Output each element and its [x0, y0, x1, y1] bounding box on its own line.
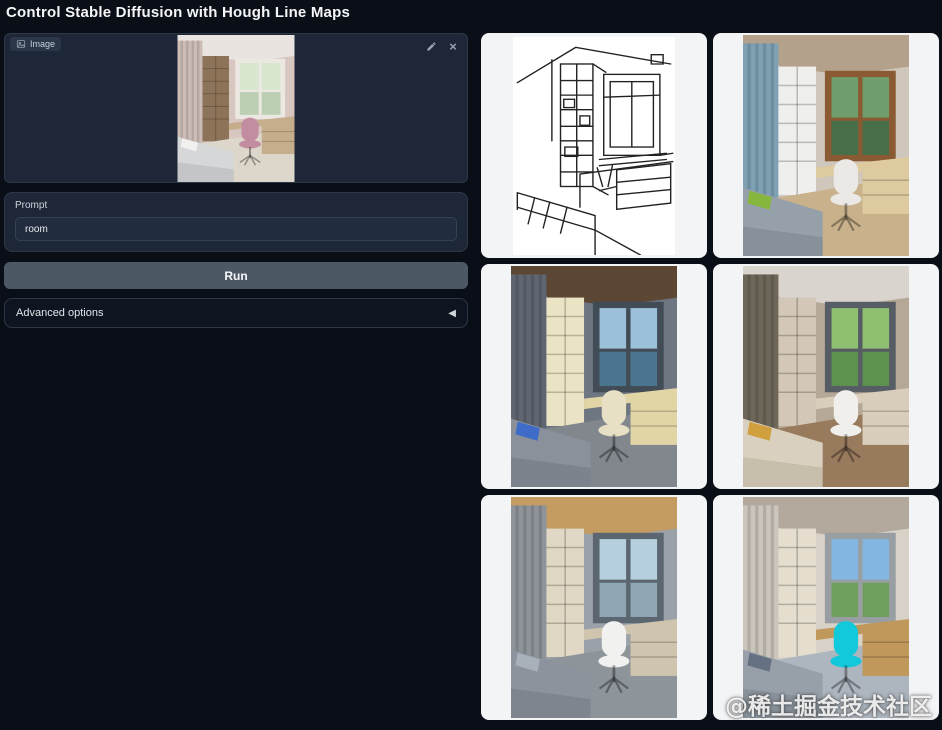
prompt-panel: Prompt [4, 192, 468, 252]
image-icon [16, 39, 26, 49]
uploaded-image-preview[interactable] [178, 35, 295, 182]
generated-room-image [511, 266, 677, 487]
uploaded-room-image [178, 35, 295, 182]
gallery-item-result-1[interactable] [713, 33, 939, 258]
prompt-label: Prompt [15, 200, 457, 211]
gallery-item-hough-map[interactable] [481, 33, 707, 258]
image-upload-area[interactable]: Image × [4, 33, 468, 183]
prompt-input[interactable] [15, 217, 457, 241]
gallery-item-result-5[interactable] [713, 495, 939, 720]
generated-room-image [511, 497, 677, 718]
image-toolbar: × [424, 39, 460, 53]
gallery-item-result-2[interactable] [481, 264, 707, 489]
generated-room-image [743, 497, 909, 718]
advanced-options-label: Advanced options [16, 307, 103, 319]
image-component-label: Image [30, 39, 55, 49]
output-gallery [481, 33, 939, 720]
gallery-item-result-3[interactable] [713, 264, 939, 489]
advanced-options-accordion[interactable]: Advanced options ◀ [4, 298, 468, 328]
input-column: Image × Prompt Run Advanced options ◀ [4, 33, 468, 328]
chevron-left-icon: ◀ [448, 308, 456, 319]
pencil-icon [426, 41, 437, 52]
clear-image-button[interactable]: × [446, 39, 460, 53]
page-title: Control Stable Diffusion with Hough Line… [6, 4, 350, 21]
image-component-badge: Image [10, 37, 61, 51]
generated-room-image [743, 266, 909, 487]
run-button[interactable]: Run [4, 262, 468, 289]
hough-line-map-image [513, 37, 675, 255]
gallery-item-result-4[interactable] [481, 495, 707, 720]
edit-image-button[interactable] [424, 39, 438, 53]
generated-room-image [743, 35, 909, 256]
